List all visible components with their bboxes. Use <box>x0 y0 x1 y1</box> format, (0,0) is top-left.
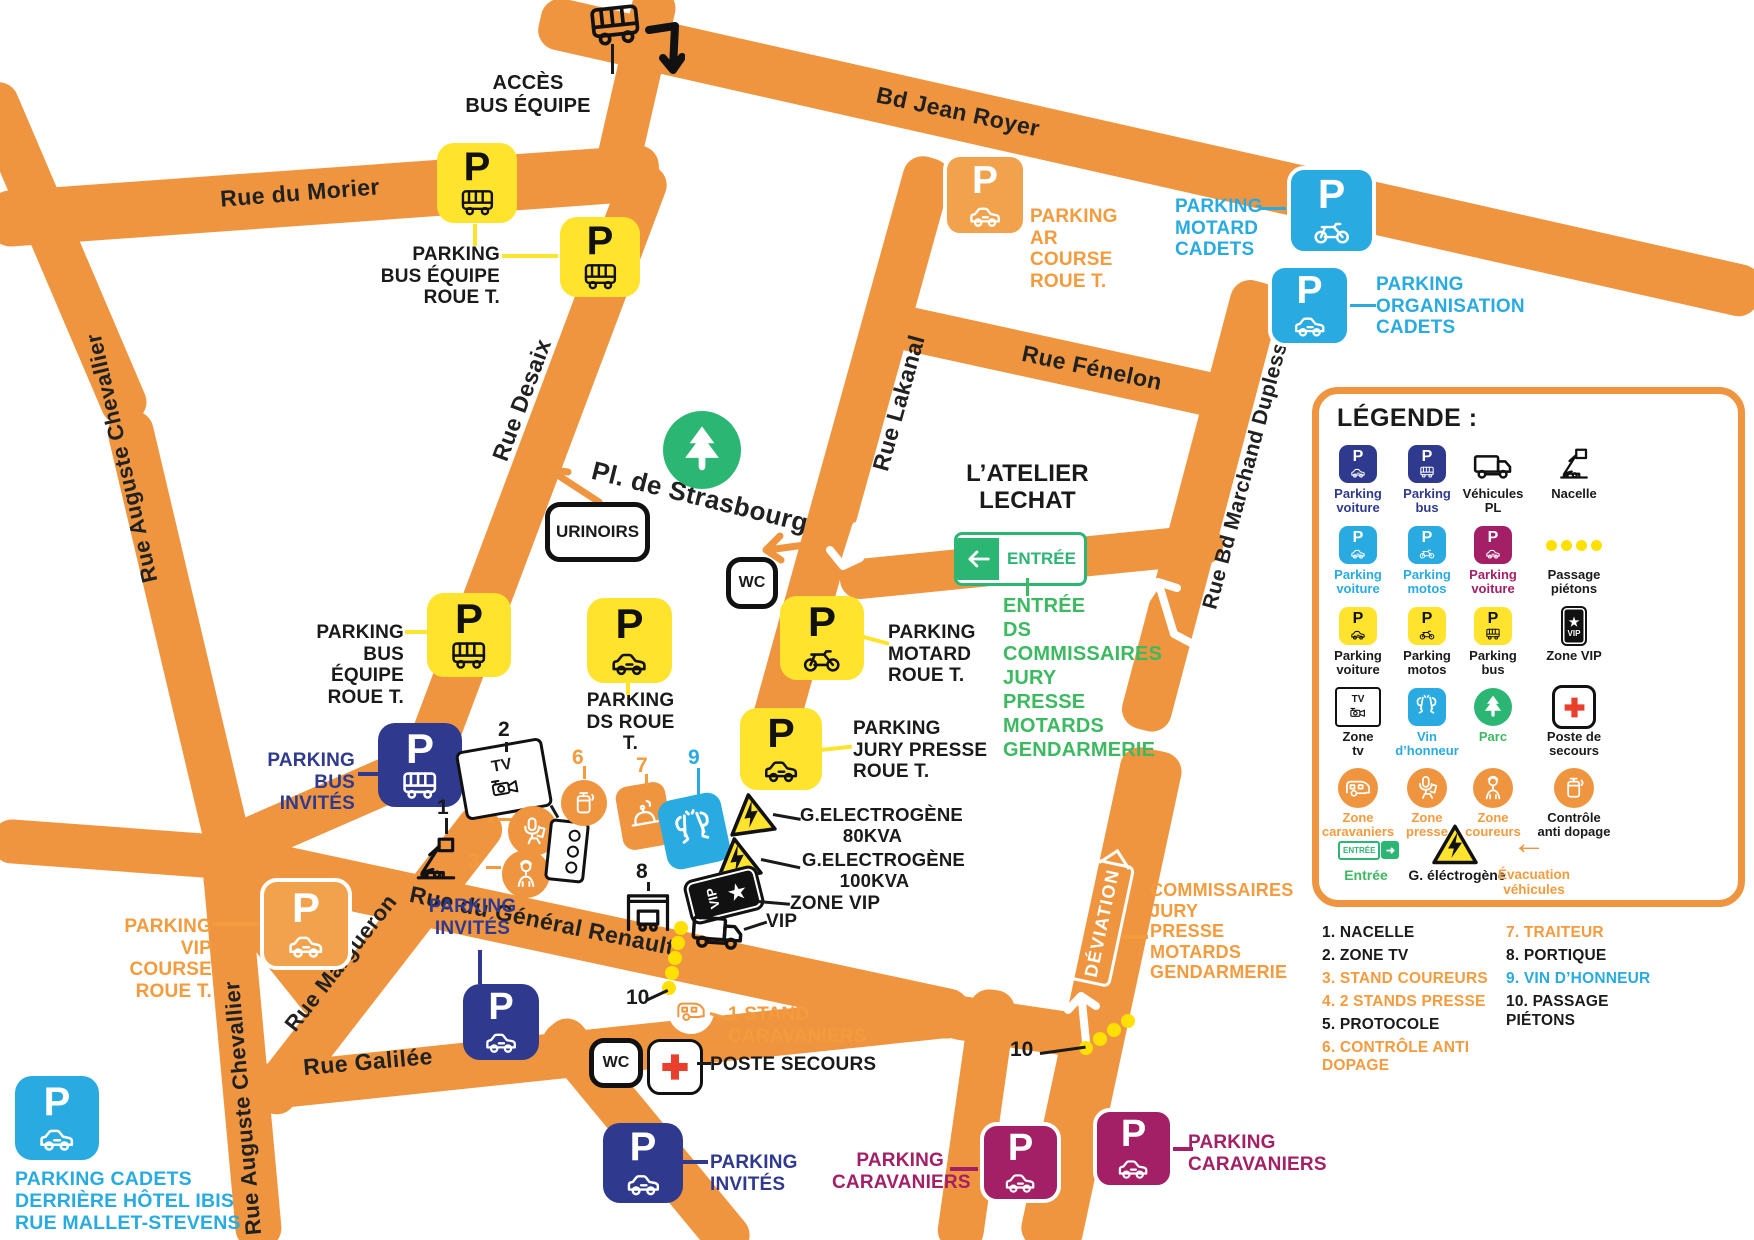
connector <box>583 766 586 779</box>
legend-item-parking-motos-yellow: PParking motos <box>1403 606 1451 677</box>
car-icon <box>754 752 808 783</box>
legend-item-parking-voiture-cyan: PParking voiture <box>1334 525 1382 596</box>
orange-arrow-strasbourg-icon <box>543 462 605 506</box>
parking-badge-invites-galilee: P <box>463 984 539 1060</box>
poste-secours-icon <box>1552 685 1596 729</box>
evacuation-arrow-icon: ← <box>1512 826 1546 860</box>
connector <box>647 882 650 891</box>
marker-3: 3 <box>468 850 480 874</box>
legend-item-parking-bus-yellow: PParking bus <box>1469 606 1517 677</box>
zone-vip-icon: ★VIP <box>1561 606 1587 646</box>
label-stand-caravaniers: 1 STAND CARAVANIERS <box>728 1004 863 1047</box>
legend-item-parking-voiture-magenta: PParking voiture <box>1469 525 1517 596</box>
controle-anti-dopage-icon <box>1554 768 1594 808</box>
legend-label-evacuation: Évacuation véhicules <box>1486 868 1582 897</box>
label-parking-caravaniers-2: PARKING CARAVANIERS <box>1188 1132 1323 1175</box>
legend-item-controle-anti-dopage: Contrôle anti dopage <box>1538 768 1611 839</box>
list-item-10: 10. PASSAGE PIÉTONS <box>1506 993 1666 1031</box>
road-bd-jean-royer <box>534 0 1754 320</box>
marker-9: 9 <box>688 746 700 770</box>
connector <box>611 44 614 74</box>
parking-car-navy-icon: P <box>1339 445 1377 483</box>
road-lakanal <box>737 152 955 784</box>
truck-icon <box>1472 447 1514 481</box>
controle-anti-dopage-icon <box>561 780 607 826</box>
star-icon: ★ <box>725 877 748 906</box>
parking-badge-invites-sud: P <box>603 1123 683 1203</box>
bus-access-icon <box>581 0 649 49</box>
connector <box>697 1062 711 1065</box>
connector <box>680 1160 708 1164</box>
legend-item-nacelle: Nacelle <box>1551 444 1597 515</box>
parking-badge-bus-equipe-acces: P <box>560 217 640 297</box>
car-icon <box>960 199 1010 228</box>
parking-badge-caravaniers-2: P <box>1093 1108 1174 1189</box>
connector <box>212 922 260 926</box>
marker-1: 1 <box>437 796 449 820</box>
label-groupe-electrogene-100: G.ELECTROGÈNE 100KVA <box>802 849 947 891</box>
connector <box>1173 1147 1193 1151</box>
parking-badge-ar-course: P <box>943 153 1027 237</box>
zone-tv-icon: TV <box>1335 687 1381 727</box>
label-parking-ds: PARKING DS ROUE T. <box>578 690 683 755</box>
nacelle-icon <box>1556 446 1592 482</box>
car-icon <box>29 1120 84 1152</box>
numbered-list-right: 7. TRAITEUR 8. PORTIQUE 9. VIN D’HONNEUR… <box>1506 924 1666 1035</box>
label-parking-bus-invites: PARKING BUS INVITÉS <box>243 750 355 815</box>
entree-sign: ENTRÉE <box>954 532 1087 586</box>
legend-item-zone-vip: ★VIPZone VIP <box>1546 606 1602 677</box>
label-parking-organisation-cadets: PARKING ORGANISATION CADETS <box>1376 274 1516 339</box>
event-parking-map-canvas: Bd Jean Royer Rue du Morier Rue Desaix R… <box>0 0 1754 1240</box>
portique-icon <box>613 884 683 936</box>
legend-item-poste-secours: Poste de secours <box>1547 687 1601 758</box>
label-parking-caravaniers-1: PARKING CARAVANIERS <box>832 1150 944 1193</box>
car-icon <box>1109 1152 1157 1180</box>
car-icon <box>617 1166 670 1196</box>
list-item-7: 7. TRAITEUR <box>1506 924 1666 943</box>
connector <box>697 768 700 796</box>
zone-coureurs-icon <box>1473 768 1513 808</box>
connector <box>358 772 380 776</box>
list-item-9: 9. VIN D’HONNEUR <box>1506 970 1666 989</box>
label-groupe-electrogene-80: G.ELECTROGÈNE 80KVA <box>800 804 945 846</box>
marker-2: 2 <box>498 718 510 742</box>
label-parking-bus-equipe-top: PARKING BUS ÉQUIPE ROUE T. <box>352 244 500 309</box>
legend-item-parking-voiture-navy: PParking voiture <box>1334 444 1382 515</box>
legend-item-parc: Parc <box>1474 687 1512 758</box>
label-parking-vip-course: PARKING VIP COURSE ROUE T. <box>104 916 212 1003</box>
poste-secours-icon <box>647 1039 703 1095</box>
connector <box>626 681 630 695</box>
zone-coureurs-icon <box>502 850 550 898</box>
list-item-1: 1. NACELLE <box>1322 924 1512 943</box>
label-parking-invites-galilee: PARKING INVITÉS <box>415 896 530 939</box>
parking-badge-cadets-ibis: P <box>15 1076 99 1160</box>
connector <box>405 630 429 634</box>
bus-icon <box>574 260 627 290</box>
label-parking-cadets-ibis: PARKING CADETS DERRIÈRE HÔTEL IBIS RUE M… <box>15 1168 255 1235</box>
connector <box>950 1167 978 1171</box>
list-item-2: 2. ZONE TV <box>1322 947 1512 966</box>
parking-bus-yellow-icon: P <box>1474 607 1512 645</box>
parking-car-cyan-icon: P <box>1339 526 1377 564</box>
connector <box>1260 207 1286 210</box>
connector <box>1122 935 1148 939</box>
parking-car-yellow-icon: P <box>1339 607 1377 645</box>
entree-arrow-icon <box>957 538 999 580</box>
zone-caravaniers-icon <box>1338 768 1378 808</box>
marker-6: 6 <box>572 746 584 770</box>
parking-badge-bus-invites: P <box>378 723 462 807</box>
parking-badge-organisation-cadets: P <box>1268 264 1351 347</box>
car-icon <box>476 1025 526 1054</box>
legend-entree-icon: ENTRÉE ➜ <box>1338 838 1399 862</box>
parc-icon <box>1474 688 1512 726</box>
vin-honneur-icon <box>1408 688 1446 726</box>
legend-item-vehicules-pl: Véhicules PL <box>1460 444 1526 515</box>
legend-item-zone-caravaniers: Zone caravaniers <box>1322 768 1394 839</box>
white-arrow-lakanal-icon <box>818 500 910 578</box>
list-item-3: 3. STAND COUREURS <box>1322 970 1512 989</box>
parking-badge-motard-cadets: P <box>1287 166 1376 255</box>
car-icon <box>278 927 333 959</box>
legend-grid: PParking voiture PParking bus Véhicules … <box>1322 444 1622 839</box>
connector <box>505 742 508 752</box>
legend-label-entree: Entrée <box>1334 868 1398 883</box>
connector <box>761 858 801 869</box>
parking-car-magenta-icon: P <box>1474 526 1512 564</box>
parking-moto-cyan-icon: P <box>1408 526 1446 564</box>
connector <box>820 745 852 752</box>
connector <box>1350 304 1376 307</box>
label-poste-secours: POSTE SECOURS <box>710 1054 885 1076</box>
zone-presse-icon <box>1407 768 1447 808</box>
label-commissaires-block: COMMISSAIRES JURY PRESSE MOTARDS GENDARM… <box>1150 880 1305 983</box>
nacelle-icon <box>411 834 461 884</box>
parking-badge-bus-equipe-desaix: P <box>427 593 511 677</box>
legend-item-zone-tv: TVZone tv <box>1335 687 1381 758</box>
connector <box>486 866 501 869</box>
connector <box>773 813 801 821</box>
marker-8: 8 <box>636 860 648 884</box>
label-parking-invites-sud: PARKING INVITÉS <box>710 1152 825 1195</box>
entree-sign-text: ENTRÉE <box>999 549 1084 569</box>
car-icon <box>1285 309 1335 338</box>
parking-badge-jury-presse: P <box>740 708 822 790</box>
label-acces-bus-equipe: ACCÈS BUS ÉQUIPE <box>448 72 608 118</box>
label-vip: VIP <box>766 911 826 933</box>
legend-item-passage-pietons: Passage piétons <box>1546 525 1602 596</box>
passage-pietons-icon <box>1546 525 1602 565</box>
road-chevallier-nord <box>0 76 153 431</box>
legend-title: LÉGENDE : <box>1337 404 1478 433</box>
connector <box>498 818 512 821</box>
urinoirs-box: URINOIRS <box>545 502 650 562</box>
marker-10-deviation: 10 <box>1010 1038 1033 1062</box>
moto-icon <box>794 641 849 673</box>
parking-badge-ds: P <box>587 598 672 683</box>
parking-badge-motard-roue: P <box>780 596 864 680</box>
wc-box-strasbourg: WC <box>726 557 778 609</box>
protocole-icon <box>544 818 590 884</box>
bus-icon <box>441 638 496 670</box>
turn-arrow-icon <box>645 22 685 78</box>
legend-item-parking-voiture-yellow: PParking voiture <box>1334 606 1382 677</box>
connector <box>502 254 558 258</box>
groupe-electrogene-80-icon <box>724 789 778 839</box>
legend-item-parking-bus-navy: PParking bus <box>1403 444 1451 515</box>
connector <box>473 224 477 246</box>
legend-item-parking-motos-cyan: PParking motos <box>1403 525 1451 596</box>
car-icon <box>601 644 657 676</box>
moto-icon <box>1305 214 1358 245</box>
label-parking-jury-presse: PARKING JURY PRESSE ROUE T. <box>853 718 998 783</box>
legend-groupe-electrogene-icon <box>1427 824 1483 866</box>
list-item-4: 4. 2 STANDS PRESSE <box>1322 993 1512 1012</box>
label-parking-ar-course: PARKING AR COURSE ROUE T. <box>1030 206 1125 293</box>
parc-icon <box>663 411 741 489</box>
connector <box>478 950 482 984</box>
legend-item-vin-honneur: Vin d’honneur <box>1395 687 1459 758</box>
car-icon <box>996 1166 1044 1194</box>
connector <box>1026 578 1029 596</box>
parking-badge-caravaniers-1: P <box>980 1122 1061 1203</box>
parking-badge-bus-equipe-morier: P <box>437 143 517 223</box>
label-parking-motard-roue: PARKING MOTARD ROUE T. <box>888 622 993 687</box>
label-parking-motard-cadets: PARKING MOTARD CADETS <box>1175 196 1267 261</box>
bus-icon <box>451 186 504 216</box>
connector <box>445 818 448 834</box>
list-item-5: 5. PROTOCOLE <box>1322 1016 1512 1035</box>
parking-badge-vip-course: P <box>260 878 352 970</box>
wc-box-galilee: WC <box>589 1038 643 1088</box>
label-parking-bus-equipe-mid: PARKING BUS ÉQUIPE ROUE T. <box>294 622 404 709</box>
list-item-8: 8. PORTIQUE <box>1506 947 1666 966</box>
parking-bus-navy-icon: P <box>1408 445 1446 483</box>
connector <box>645 774 648 786</box>
label-entree-ds-block: ENTRÉE DS COMMISSAIRES JURY PRESSE MOTAR… <box>1003 594 1178 762</box>
numbered-list-left: 1. NACELLE 2. ZONE TV 3. STAND COUREURS … <box>1322 924 1512 1080</box>
label-atelier-lechat: L’ATELIER LECHAT <box>950 460 1105 515</box>
parking-moto-yellow-icon: P <box>1408 607 1446 645</box>
vip-truck-icon <box>686 904 749 954</box>
list-item-6: 6. CONTRÔLE ANTI DOPAGE <box>1322 1039 1512 1077</box>
stand-caravaniers-icon <box>668 988 714 1034</box>
